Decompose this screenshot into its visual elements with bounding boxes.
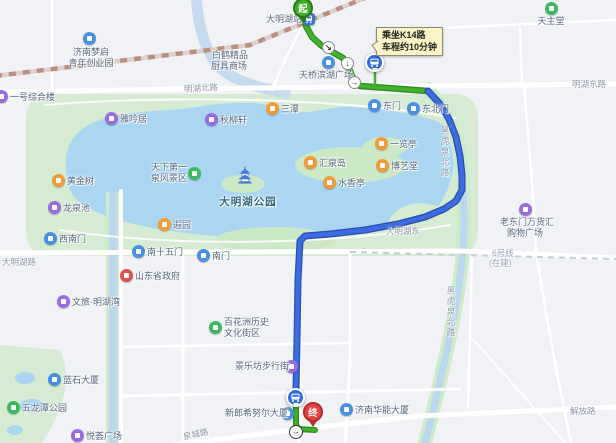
road-heihuquan-north: 黑虎泉北路 (446, 286, 455, 339)
poi-huaneng-tower[interactable]: 济南华能大厦 (355, 405, 409, 415)
gate-icon[interactable] (407, 102, 420, 115)
poi-mengqi-park-line2[interactable]: 青年创业园 (68, 58, 113, 68)
poi-laodongmen-line2[interactable]: 购物广场 (507, 228, 543, 238)
plaza-icon[interactable] (322, 56, 335, 69)
scenic-icon[interactable] (375, 137, 388, 150)
poi-qiuliuxuan[interactable]: 秋柳轩 (220, 115, 247, 125)
poi-xiayuan[interactable]: 遐园 (173, 220, 191, 230)
poi-wulongtan-park[interactable]: 五龙潭公园 (22, 403, 67, 413)
poi-baihuazhou-line2[interactable]: 文化街区 (224, 328, 260, 338)
road-minghu-east: 明湖东路 (572, 80, 606, 89)
poi-southwest-gate[interactable]: 西南门 (59, 234, 86, 244)
poi-santan[interactable]: 三潭 (281, 104, 299, 114)
poi-longquanchi[interactable]: 龙泉池 (63, 203, 90, 213)
scenic-icon[interactable] (158, 218, 171, 231)
heritage-icon[interactable] (105, 112, 118, 125)
map-canvas[interactable]: 大明湖站 济南梦启 青年创业园 白鹤精品 厨具商场 天主堂 一号综合楼 天桥滨湖… (0, 0, 616, 443)
route-arrow-icon: → (289, 425, 303, 439)
building-icon[interactable] (340, 403, 353, 416)
road-jiefang: 解放路 (570, 407, 596, 416)
poi-baihe-mall-line1[interactable]: 白鹤精品 (212, 50, 248, 60)
road-metro-line6: 6号线 (492, 249, 514, 258)
culture-icon[interactable] (57, 295, 70, 308)
poi-baihe-mall-line2[interactable]: 厨具商场 (211, 61, 247, 71)
scenic-icon[interactable] (304, 156, 317, 169)
route-end-pin[interactable]: 终 (303, 402, 323, 422)
gate-icon[interactable] (44, 232, 57, 245)
mall-icon[interactable] (519, 203, 532, 216)
enterprise-park-icon[interactable] (83, 32, 96, 45)
poi-shandong-gov[interactable]: 山东省政府 (135, 271, 180, 281)
scenic-icon[interactable] (52, 174, 65, 187)
church-icon[interactable] (545, 2, 558, 15)
poi-huangjinshu[interactable]: 黄金树 (67, 176, 94, 186)
poi-south-gate[interactable]: 南门 (212, 251, 230, 261)
poi-no1-building[interactable]: 一号综合楼 (10, 92, 55, 102)
poi-east-gate[interactable]: 东门 (383, 101, 401, 111)
bus-stop-alight-icon[interactable] (286, 388, 305, 407)
poi-northeast-gate[interactable]: 东北门 (422, 104, 449, 114)
poi-daminghu-park[interactable]: 大明湖公园 (219, 197, 277, 207)
road-daminghu-east: 大明湖东 (386, 227, 420, 236)
road-heihuquan-north-upper: 黑虎泉北路 (440, 126, 449, 179)
scenic-icon[interactable] (266, 102, 279, 115)
road-daminghu: 大明湖路 (2, 258, 36, 267)
poi-tianqiao-binhu-plaza[interactable]: 天桥滨湖广场 (299, 70, 353, 80)
road-minghu-north: 明湖北路 (184, 83, 218, 94)
poi-yilanting[interactable]: 一览亭 (390, 139, 417, 149)
pagoda-icon (235, 166, 255, 190)
poi-xinlang-tower[interactable]: 新郎希努尔大厦 (225, 408, 288, 418)
gate-icon[interactable] (197, 249, 210, 262)
route-arrow-icon: → (348, 76, 361, 89)
gate-icon[interactable] (368, 99, 381, 112)
poi-jinglefang-street[interactable]: 景乐坊步行街 (235, 361, 289, 371)
government-icon[interactable] (120, 269, 133, 282)
poi-yayinju[interactable]: 雅吟居 (120, 114, 147, 124)
scenic-icon[interactable] (376, 159, 389, 172)
scenic-icon[interactable] (323, 176, 336, 189)
heritage-icon[interactable] (48, 201, 61, 214)
poi-diyiquan-line1[interactable]: 天下第一 (151, 162, 187, 172)
route-arrow-icon: ↘ (322, 41, 335, 54)
mall-icon[interactable] (71, 429, 84, 442)
poi-south-gate-2[interactable]: 南十五门 (147, 247, 183, 257)
park-icon[interactable] (7, 401, 20, 414)
transit-tooltip-line1: 乘坐K14路 (382, 30, 437, 42)
scenic-area-icon[interactable] (188, 167, 201, 180)
poi-laodongmen-line1[interactable]: 老东门万货汇 (500, 217, 554, 227)
historic-district-icon[interactable] (209, 321, 222, 334)
gate-icon[interactable] (132, 245, 145, 258)
poi-huiquan-island[interactable]: 汇泉岛 (319, 158, 346, 168)
poi-yuehui-plaza[interactable]: 悦荟广场 (86, 431, 122, 441)
poi-diyiquan-line2[interactable]: 泉风景区 (151, 173, 187, 183)
heritage-icon[interactable] (205, 113, 218, 126)
poi-shuixiangting[interactable]: 水香亭 (338, 178, 365, 188)
transit-tooltip-line2: 车程约10分钟 (382, 42, 437, 54)
transit-tooltip: 乘坐K14路 车程约10分钟 (376, 27, 443, 56)
road-metro-line6-status: (在建) (489, 259, 512, 268)
poi-lanshi-tower[interactable]: 蓝石大厦 (63, 375, 99, 385)
building-icon[interactable] (48, 373, 61, 386)
poi-baihuazhou-line1[interactable]: 百花洲历史 (224, 317, 269, 327)
poi-boyitang[interactable]: 博艺堂 (391, 161, 418, 171)
poi-minghuwan[interactable]: 文旅·明湖湾 (72, 297, 120, 307)
route-arrow-icon: ↓ (341, 57, 354, 70)
poi-mengqi-park-line1[interactable]: 济南梦启 (73, 47, 109, 57)
poi-tianzhutang[interactable]: 天主堂 (537, 16, 564, 26)
